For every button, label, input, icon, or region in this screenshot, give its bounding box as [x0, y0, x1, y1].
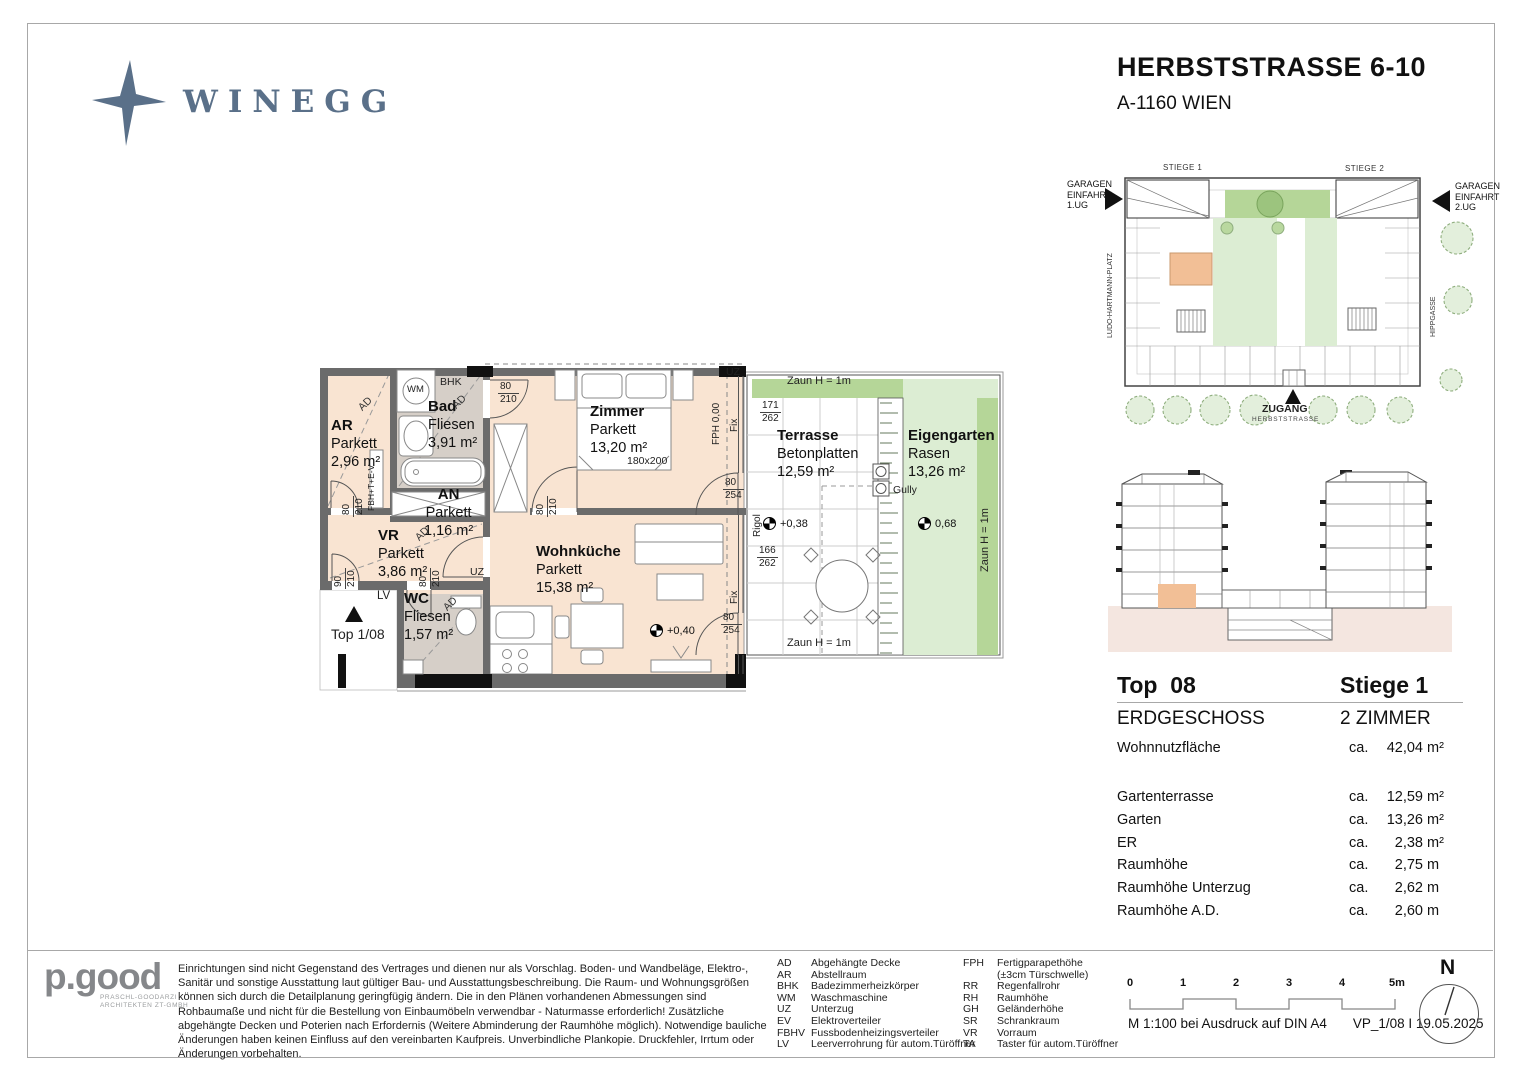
table-row: Gartenterrasseca. 12,59m²	[1117, 789, 1463, 805]
north-needle-icon	[1419, 984, 1477, 1042]
fence-label: Zaun H = 1m	[787, 637, 851, 649]
ludo-hartmann-platz-label: LUDO-HARTMANN-PLATZ	[1107, 253, 1114, 338]
unit-number: Top 08	[1117, 672, 1196, 699]
washing-machine-label: WM	[407, 384, 424, 395]
dim-window-upper: 80254	[723, 477, 744, 502]
level-icon	[763, 517, 776, 530]
room-label-wohnkueche: Wohnküche Parkett 15,38 m²	[536, 543, 621, 597]
bed-size-label: 180x200	[627, 455, 667, 467]
table-row: Raumhöhe A.D.ca. 2,60m	[1117, 903, 1463, 919]
fence-label: Zaun H = 1m	[787, 375, 851, 387]
herbststrasse-label: HERBSTSTRASSE	[1252, 416, 1319, 423]
area-table-details: Gartenterrasseca. 12,59m² Gartenca. 13,2…	[1117, 789, 1463, 926]
dim-bad-door: 80210	[498, 381, 519, 406]
room-label-ar: AR Parkett 2,96 m²	[331, 417, 380, 471]
legend-row: WMWaschmaschine	[777, 993, 975, 1005]
winegg-star-icon	[92, 60, 166, 146]
architect-logo: p.good PRASCHL-GOODARZI ARCHITEKTEN ZT-G…	[44, 960, 188, 1010]
print-scale: M 1:100 bei Ausdruck auf DIN A4	[1128, 1016, 1327, 1031]
level-marker-livingroom: +0,40	[650, 624, 695, 637]
rigol-label: Rigol	[752, 514, 763, 537]
scale-tick: 2	[1233, 977, 1239, 989]
uz-label: UZ	[726, 366, 740, 378]
dim-vr-door: 80210	[418, 568, 443, 589]
table-row: Raumhöhe Unterzugca. 2,62m	[1117, 880, 1463, 896]
fix-label: Fix	[729, 591, 740, 604]
scale-tick: 5m	[1389, 977, 1405, 989]
entrance-triangle	[345, 606, 363, 622]
level-icon	[918, 517, 931, 530]
table-row: Gartenca. 13,26m²	[1117, 812, 1463, 828]
level-marker-terrace: +0,38	[763, 517, 808, 530]
scale-bar	[1128, 995, 1398, 1015]
dim-entry-door: 90210	[333, 568, 358, 589]
footer-divider	[27, 950, 1493, 951]
room-label-terrasse: Terrasse Betonplatten 12,59 m²	[777, 427, 858, 481]
site-stiege1-label: STIEGE 1	[1163, 163, 1202, 172]
lv-label: LV	[377, 590, 390, 602]
table-row: Wohnnutzflächeca. 42,04m²	[1117, 740, 1463, 756]
page-subtitle: A-1160 WIEN	[1117, 93, 1232, 115]
scale-tick: 4	[1339, 977, 1345, 989]
gully-label: Gully	[893, 484, 917, 496]
floorplan-document: WINEGG HERBSTSTRASSE 6-10 A-1160 WIEN	[0, 0, 1527, 1080]
garage-entry-1-label: GARAGEN EINFAHRT 1.UG	[1067, 179, 1129, 211]
legend-column-2: FPHFertigparapethöhe (±3cm Türschwelle) …	[963, 958, 1118, 1051]
legend-row: FPHFertigparapethöhe	[963, 958, 1118, 970]
zugang-label: ZUGANG	[1262, 403, 1308, 415]
room-label-zimmer: Zimmer Parkett 13,20 m²	[590, 403, 647, 457]
info-divider	[1117, 702, 1463, 703]
hippgasse-label: HIPPGASSE	[1430, 297, 1437, 337]
legend-row: EVElektroverteiler	[777, 1016, 975, 1028]
dim-ar-door: 80210	[341, 496, 366, 517]
staircase-number: Stiege 1	[1340, 672, 1428, 699]
unit-marker: Top 1/08	[331, 626, 385, 642]
dim-zimmer-door: 80210	[535, 496, 560, 517]
legend-row: ADAbgehängte Decke	[777, 958, 975, 970]
legend-row: SRSchrankraum	[963, 1016, 1118, 1028]
right-tower	[1326, 472, 1426, 608]
fph-label: FPH 0,00	[711, 403, 722, 445]
fbh-label: FBH+T+E-V	[366, 465, 376, 511]
room-count: 2 ZIMMER	[1340, 708, 1431, 730]
site-stiege2-label: STIEGE 2	[1345, 164, 1384, 173]
area-table: Wohnnutzflächeca. 42,04m²	[1117, 740, 1463, 763]
dim-window-lower: 80254	[721, 612, 742, 637]
garage-entry-2-label: GARAGEN EINFAHRT 2.UG	[1455, 181, 1517, 213]
site-plan-drawing	[1065, 158, 1495, 428]
scale-tick: 1	[1180, 977, 1186, 989]
legend-row: LVLeerverrohrung für autom.Türöffner	[777, 1039, 975, 1051]
table-row: Raumhöheca. 2,75m	[1117, 857, 1463, 873]
page-title: HERBSTSTRASSE 6-10	[1117, 52, 1426, 83]
room-label-eigengarten: Eigengarten Rasen 13,26 m²	[908, 427, 995, 481]
disclaimer-text: Einrichtungen sind nicht Gegenstand des …	[178, 962, 770, 1061]
dim-terrace-upper: 171262	[760, 400, 781, 425]
level-icon	[650, 624, 663, 637]
building-section-drawing	[1100, 470, 1470, 655]
scale-tick: 0	[1127, 977, 1133, 989]
fence-label: Zaun H = 1m	[979, 508, 991, 572]
legend-column-1: ADAbgehängte Decke ARAbstellraum BHKBade…	[777, 958, 975, 1051]
scale-tick: 3	[1286, 977, 1292, 989]
floor-level: ERDGESCHOSS	[1117, 708, 1265, 730]
north-label: N	[1440, 956, 1455, 980]
table-row: ERca. 2,38m²	[1117, 835, 1463, 851]
bhk-label: BHK	[440, 376, 462, 388]
middle-section	[1222, 590, 1332, 640]
uz-label: UZ	[470, 566, 484, 578]
highlighted-unit-section	[1158, 584, 1196, 608]
terrace-garden	[744, 372, 1003, 658]
fix-label: Fix	[729, 419, 740, 432]
brand-logo: WINEGG	[183, 84, 397, 120]
dim-terrace-lower: 166262	[757, 545, 778, 570]
level-marker-garden: 0,68	[918, 517, 956, 530]
legend-row: TATaster für autom.Türöffner	[963, 1039, 1118, 1051]
